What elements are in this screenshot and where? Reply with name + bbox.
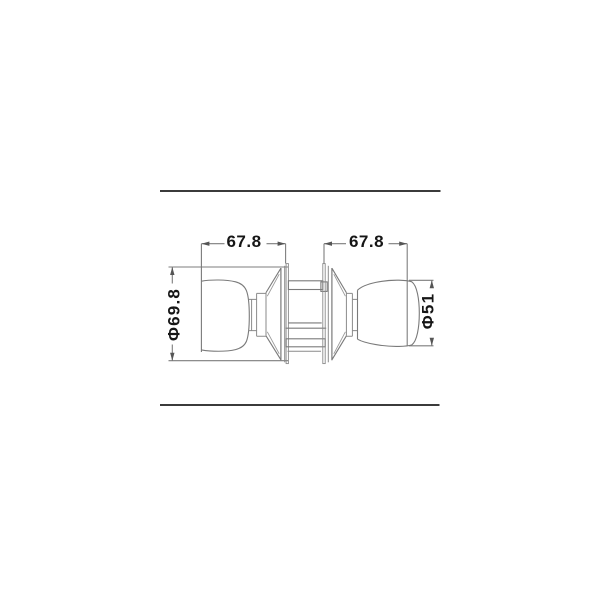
svg-text:Φ69.8: Φ69.8 <box>165 288 184 341</box>
svg-text:Φ51: Φ51 <box>419 293 438 329</box>
svg-text:67.8: 67.8 <box>349 232 384 251</box>
svg-text:67.8: 67.8 <box>226 232 261 251</box>
